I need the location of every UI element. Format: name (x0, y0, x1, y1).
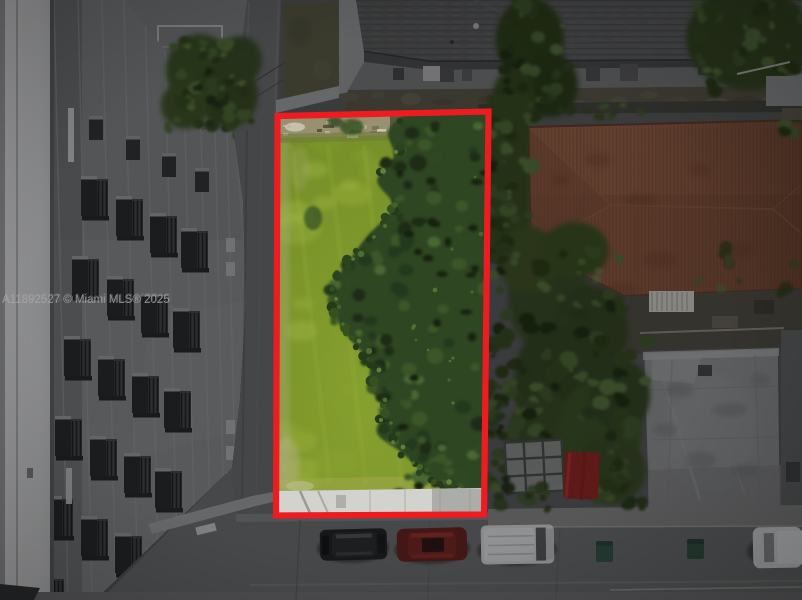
svg-text:A11893533 © Miami MLS® 2025: A11893533 © Miami MLS® 2025 (3, 293, 171, 305)
